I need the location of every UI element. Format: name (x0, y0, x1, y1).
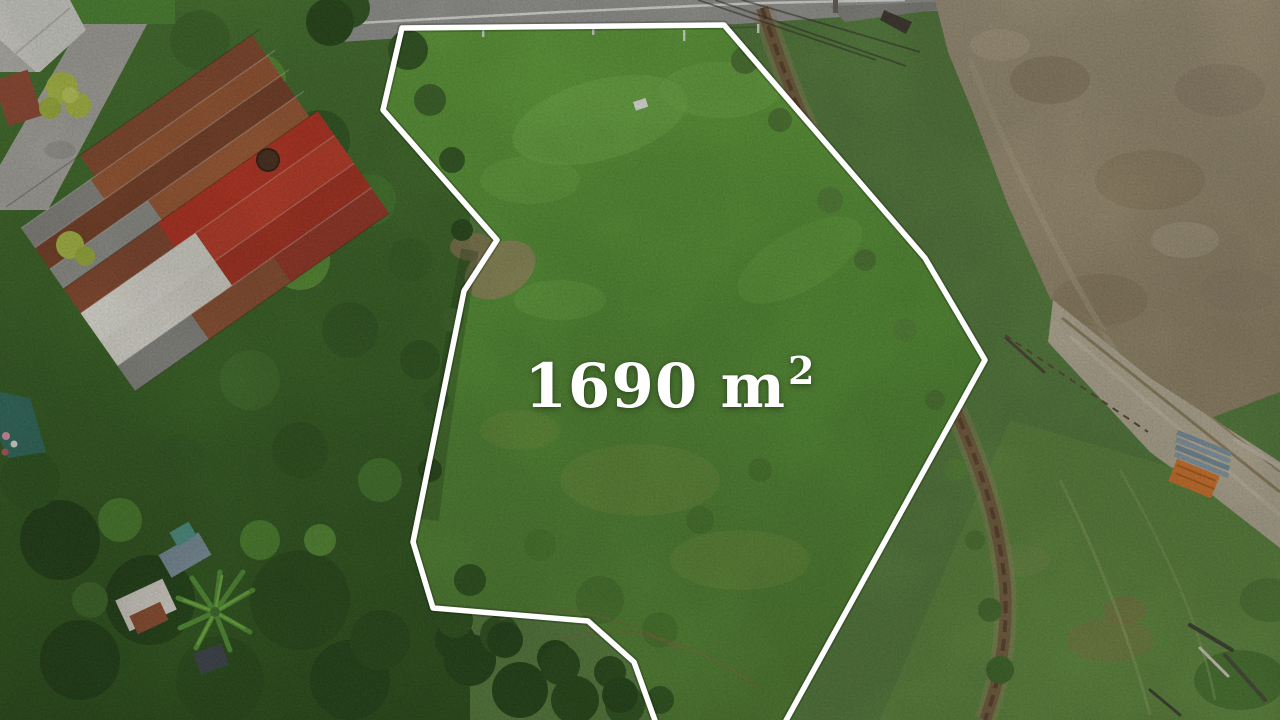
aerial-photo: 1690 m2 (0, 0, 1280, 720)
area-value: 1690 m (524, 351, 786, 422)
area-label: 1690 m2 (520, 352, 820, 417)
area-exponent: 2 (788, 348, 815, 393)
